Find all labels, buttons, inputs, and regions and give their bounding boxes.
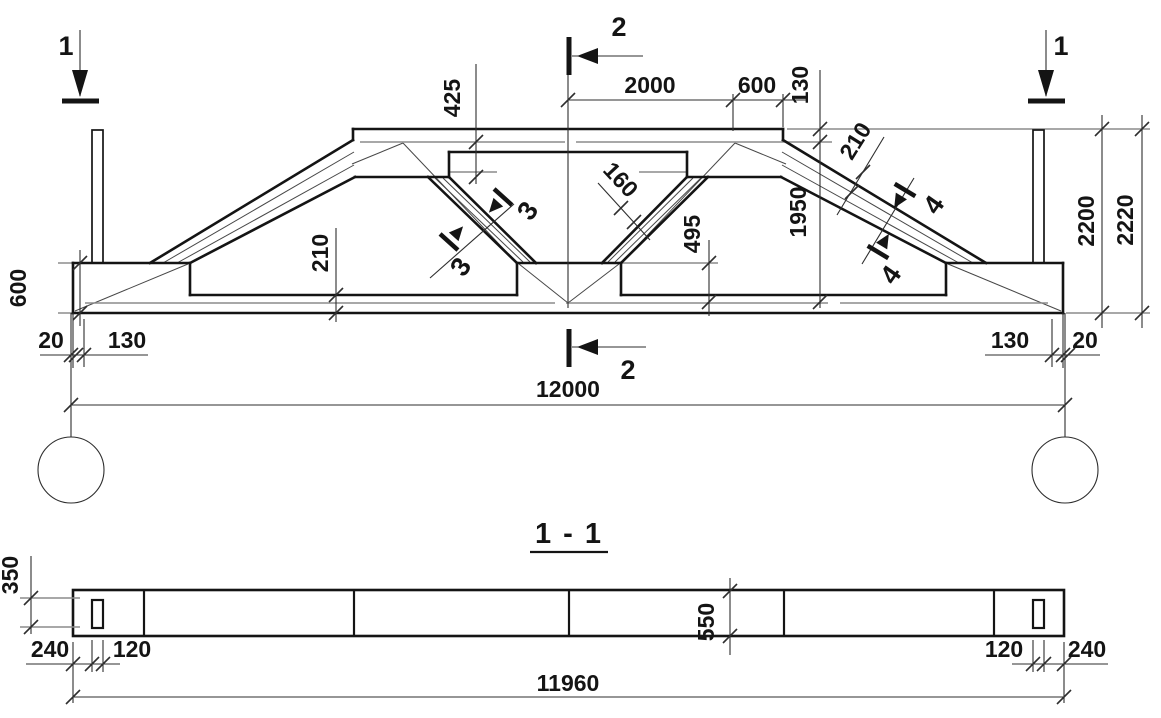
section-1-1-view: 350 240 120 550 120 240 11960 — [0, 556, 1108, 704]
dim-span: 12000 — [536, 376, 600, 402]
section-label-3: 3 — [444, 252, 477, 282]
dim-height-total: 2220 — [1112, 194, 1138, 245]
dim-bearing-right: 130 — [991, 327, 1029, 353]
right-post — [1033, 130, 1044, 263]
section-label-1: 1 — [1053, 31, 1068, 61]
dim-gap-left: 20 — [38, 327, 64, 353]
section-marker-2-top: 2 — [569, 12, 643, 75]
section-arrow-down-icon — [1038, 70, 1054, 97]
truss-drawing-canvas: 2000 600 130 425 1950 495 210 160 210 60… — [0, 0, 1161, 718]
section-title: 1 - 1 — [530, 518, 608, 552]
drawing-sheet: 2000 600 130 425 1950 495 210 160 210 60… — [0, 0, 1161, 718]
dim-gap-right: 20 — [1072, 327, 1098, 353]
section-label-1: 1 — [58, 31, 73, 61]
plan-outline — [73, 590, 1064, 636]
section-label-4: 4 — [874, 260, 907, 290]
axis-circle-right — [1032, 437, 1098, 503]
section-marker-1-right: 1 — [1028, 30, 1069, 101]
section-arrow-left-icon — [577, 339, 598, 355]
dim-chord-depth: 425 — [439, 79, 465, 118]
dim-bottom-chord: 210 — [307, 234, 333, 272]
section-marker-3-lower: 3 — [440, 218, 477, 281]
dim-ticks — [64, 93, 1149, 412]
section-marker-3-upper: 3 — [480, 189, 544, 226]
dim-node-height: 495 — [679, 215, 705, 254]
dim-bearing-left: 130 — [108, 327, 146, 353]
dim-hole-width-right: 120 — [985, 636, 1023, 662]
dim-hole-inset-right: 240 — [1068, 636, 1106, 662]
dim-web-height: 1950 — [785, 186, 811, 237]
post-hole-right — [1033, 600, 1044, 628]
dim-top-mid: 2000 — [624, 72, 675, 98]
section-label-2: 2 — [611, 12, 626, 42]
left-post — [92, 130, 103, 263]
dim-inner-diag: 160 — [598, 157, 643, 203]
section-marker-4-lower: 4 — [868, 228, 908, 290]
section-label-2: 2 — [620, 355, 635, 385]
dim-top-step: 130 — [787, 66, 813, 104]
dim-mid-depth: 550 — [693, 603, 719, 641]
post-hole-left — [92, 600, 103, 628]
section-arrow-down-icon — [72, 70, 88, 97]
cut-arrow-icon — [449, 222, 468, 241]
section-label-3: 3 — [511, 196, 544, 226]
dim-support-height: 600 — [5, 269, 31, 307]
dim-hole-width-left: 120 — [113, 636, 151, 662]
section-marker-4-upper: 4 — [884, 184, 950, 220]
dim-hole-inset-left: 240 — [31, 636, 69, 662]
dim-top-end: 600 — [738, 72, 776, 98]
axis-circle-left — [38, 437, 104, 503]
dim-diag-thk: 210 — [834, 118, 876, 164]
dim-end-depth: 350 — [0, 556, 23, 594]
section-marker-1-left: 1 — [58, 30, 99, 101]
section-arrow-left-icon — [577, 48, 598, 64]
section-label-4: 4 — [917, 190, 950, 220]
dim-plan-length: 11960 — [537, 670, 600, 696]
elevation-view: 2000 600 130 425 1950 495 210 160 210 60… — [5, 12, 1150, 503]
dim-height-inner: 2200 — [1073, 195, 1099, 246]
section-title-text: 1 - 1 — [535, 518, 603, 550]
